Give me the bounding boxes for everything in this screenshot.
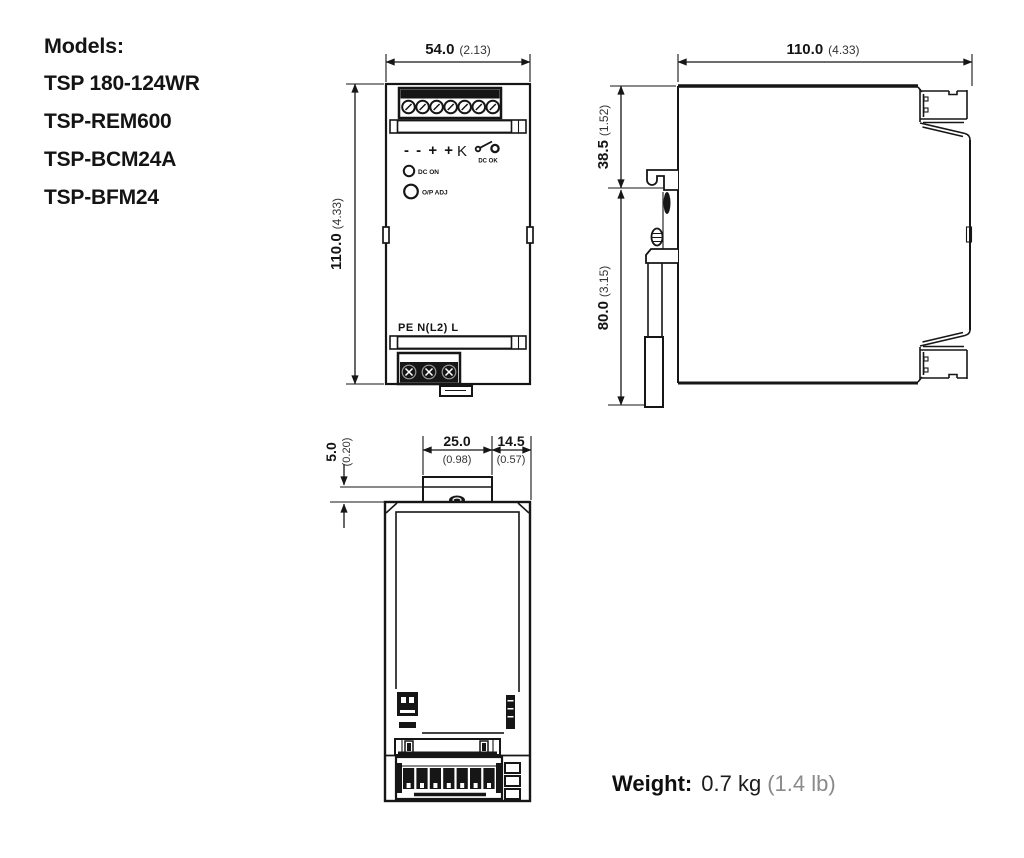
side-view-drawing: 110.0(4.33) 38.5(1.52) 80.0(3.15) — [595, 25, 1015, 420]
dc-on-label: DC ON — [418, 169, 439, 176]
input-terminal-labels: PE N(L2) L — [398, 322, 459, 334]
svg-text:80.0(3.15): 80.0(3.15) — [595, 266, 612, 331]
side-clip-left — [383, 227, 389, 243]
clip-slider — [645, 337, 663, 407]
dim-front-height: 110.0(4.33) — [328, 84, 384, 384]
side-body — [645, 86, 972, 407]
model-item: TSP-REM600 — [44, 103, 200, 141]
dim-front-width: 54.0(2.13) — [386, 41, 530, 82]
dc-ok-label: DC OK — [478, 159, 498, 165]
svg-text:38.5(1.52): 38.5(1.52) — [595, 105, 612, 170]
models-list: Models: TSP 180-124WR TSP-REM600 TSP-BCM… — [44, 27, 200, 217]
din-rail-clip — [645, 170, 678, 407]
top-view-drawing: 25.0 (0.98) 14.5 (0.57) 5.0 (0.20) — [315, 428, 580, 813]
svg-text:5.0: 5.0 — [323, 442, 339, 462]
connector — [395, 689, 422, 735]
top-body — [385, 502, 530, 801]
svg-text:(0.98): (0.98) — [443, 454, 472, 466]
clip-protrusion — [423, 477, 492, 505]
dim-top-offset: 14.5 (0.57) — [492, 433, 531, 500]
svg-text:(0.20): (0.20) — [341, 438, 353, 467]
output-adjust-label: O/P ADJ — [422, 190, 448, 197]
models-heading: Models: — [44, 27, 200, 65]
svg-text:110.0(4.33): 110.0(4.33) — [786, 41, 859, 58]
bottom-right-pocket — [918, 330, 970, 382]
mechanical-drawing-page: Models: TSP 180-124WR TSP-REM600 TSP-BCM… — [0, 0, 1024, 858]
svg-text:110.0(4.33): 110.0(4.33) — [328, 198, 345, 270]
svg-text:54.0(2.13): 54.0(2.13) — [425, 41, 491, 58]
model-item: TSP 180-124WR — [44, 65, 200, 103]
front-view-drawing: 54.0(2.13) 110.0(4.33) — [330, 25, 586, 420]
svg-text:25.0: 25.0 — [443, 433, 470, 449]
svg-text:14.5: 14.5 — [497, 433, 524, 449]
front-body — [383, 84, 533, 384]
svg-text:K: K — [457, 143, 467, 160]
weight-note: Weight:0.7 kg(1.4 lb) — [612, 771, 836, 797]
dim-side-lower: 80.0(3.15) — [595, 190, 645, 405]
model-item: TSP-BCM24A — [44, 141, 200, 179]
side-clip-right — [527, 227, 533, 243]
relay-contact-icon: K — [457, 143, 467, 160]
model-item: TSP-BFM24 — [44, 179, 200, 217]
weight-label: Weight: — [612, 771, 692, 796]
polarity-symbols: - - + + — [404, 142, 455, 159]
svg-text:(0.57): (0.57) — [497, 454, 526, 466]
label-tag — [504, 692, 520, 736]
mounting-tab — [440, 386, 472, 396]
weight-imperial: (1.4 lb) — [767, 771, 835, 796]
weight-metric: 0.7 kg — [701, 771, 761, 796]
svg-text:- - + +: - - + + — [404, 142, 455, 159]
dim-side-depth: 110.0(4.33) — [678, 41, 972, 86]
top-right-pocket — [918, 87, 970, 140]
dim-top-clip-width: 25.0 (0.98) — [423, 433, 492, 475]
